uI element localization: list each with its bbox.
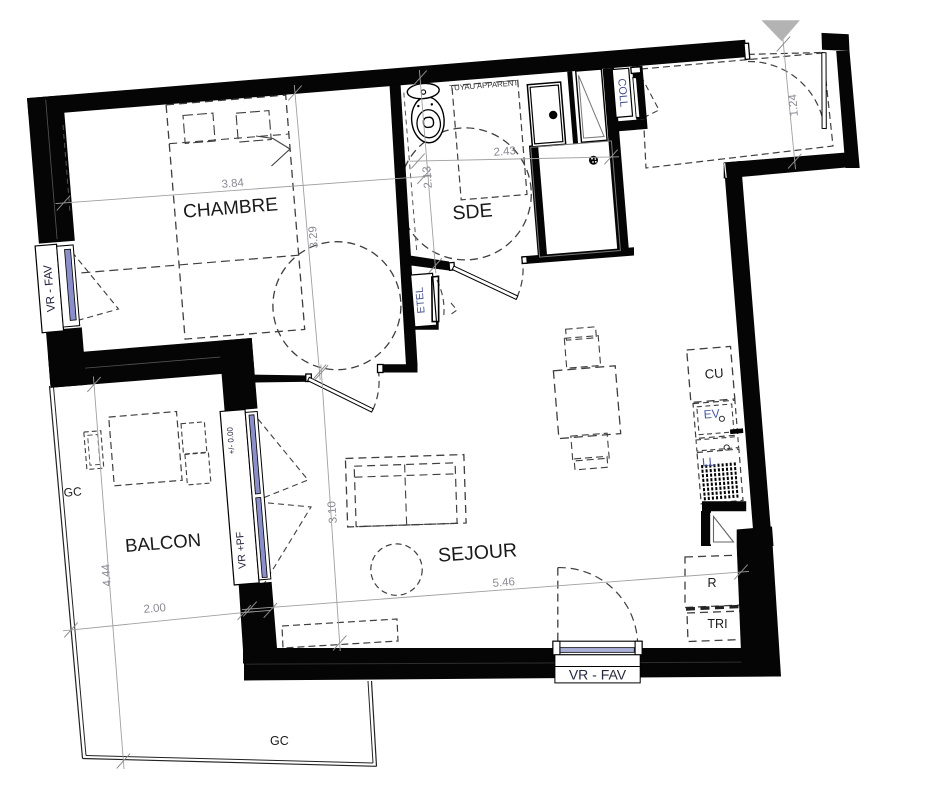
svg-text:3.10: 3.10 [326, 501, 340, 524]
svg-text:LL: LL [701, 454, 716, 469]
svg-text:2.00: 2.00 [143, 602, 166, 616]
svg-text:SDE: SDE [452, 199, 494, 224]
svg-text:CU: CU [704, 365, 724, 381]
svg-text:3.84: 3.84 [221, 177, 245, 191]
svg-text:VR - FAV: VR - FAV [569, 667, 627, 683]
svg-text:5.46: 5.46 [492, 576, 515, 590]
svg-text:EV: EV [703, 406, 720, 421]
svg-text:GC: GC [270, 734, 289, 748]
svg-text:ETEL: ETEL [414, 287, 428, 314]
svg-text:1.24: 1.24 [787, 93, 801, 117]
svg-text:R: R [707, 576, 716, 590]
svg-text:3.29: 3.29 [307, 226, 321, 249]
svg-text:4.44: 4.44 [100, 563, 114, 587]
svg-text:COLL: COLL [615, 78, 629, 108]
svg-text:2.43: 2.43 [493, 145, 516, 159]
svg-text:TRI: TRI [707, 617, 727, 631]
svg-text:GC: GC [63, 484, 82, 499]
svg-text:2.13: 2.13 [421, 166, 435, 189]
